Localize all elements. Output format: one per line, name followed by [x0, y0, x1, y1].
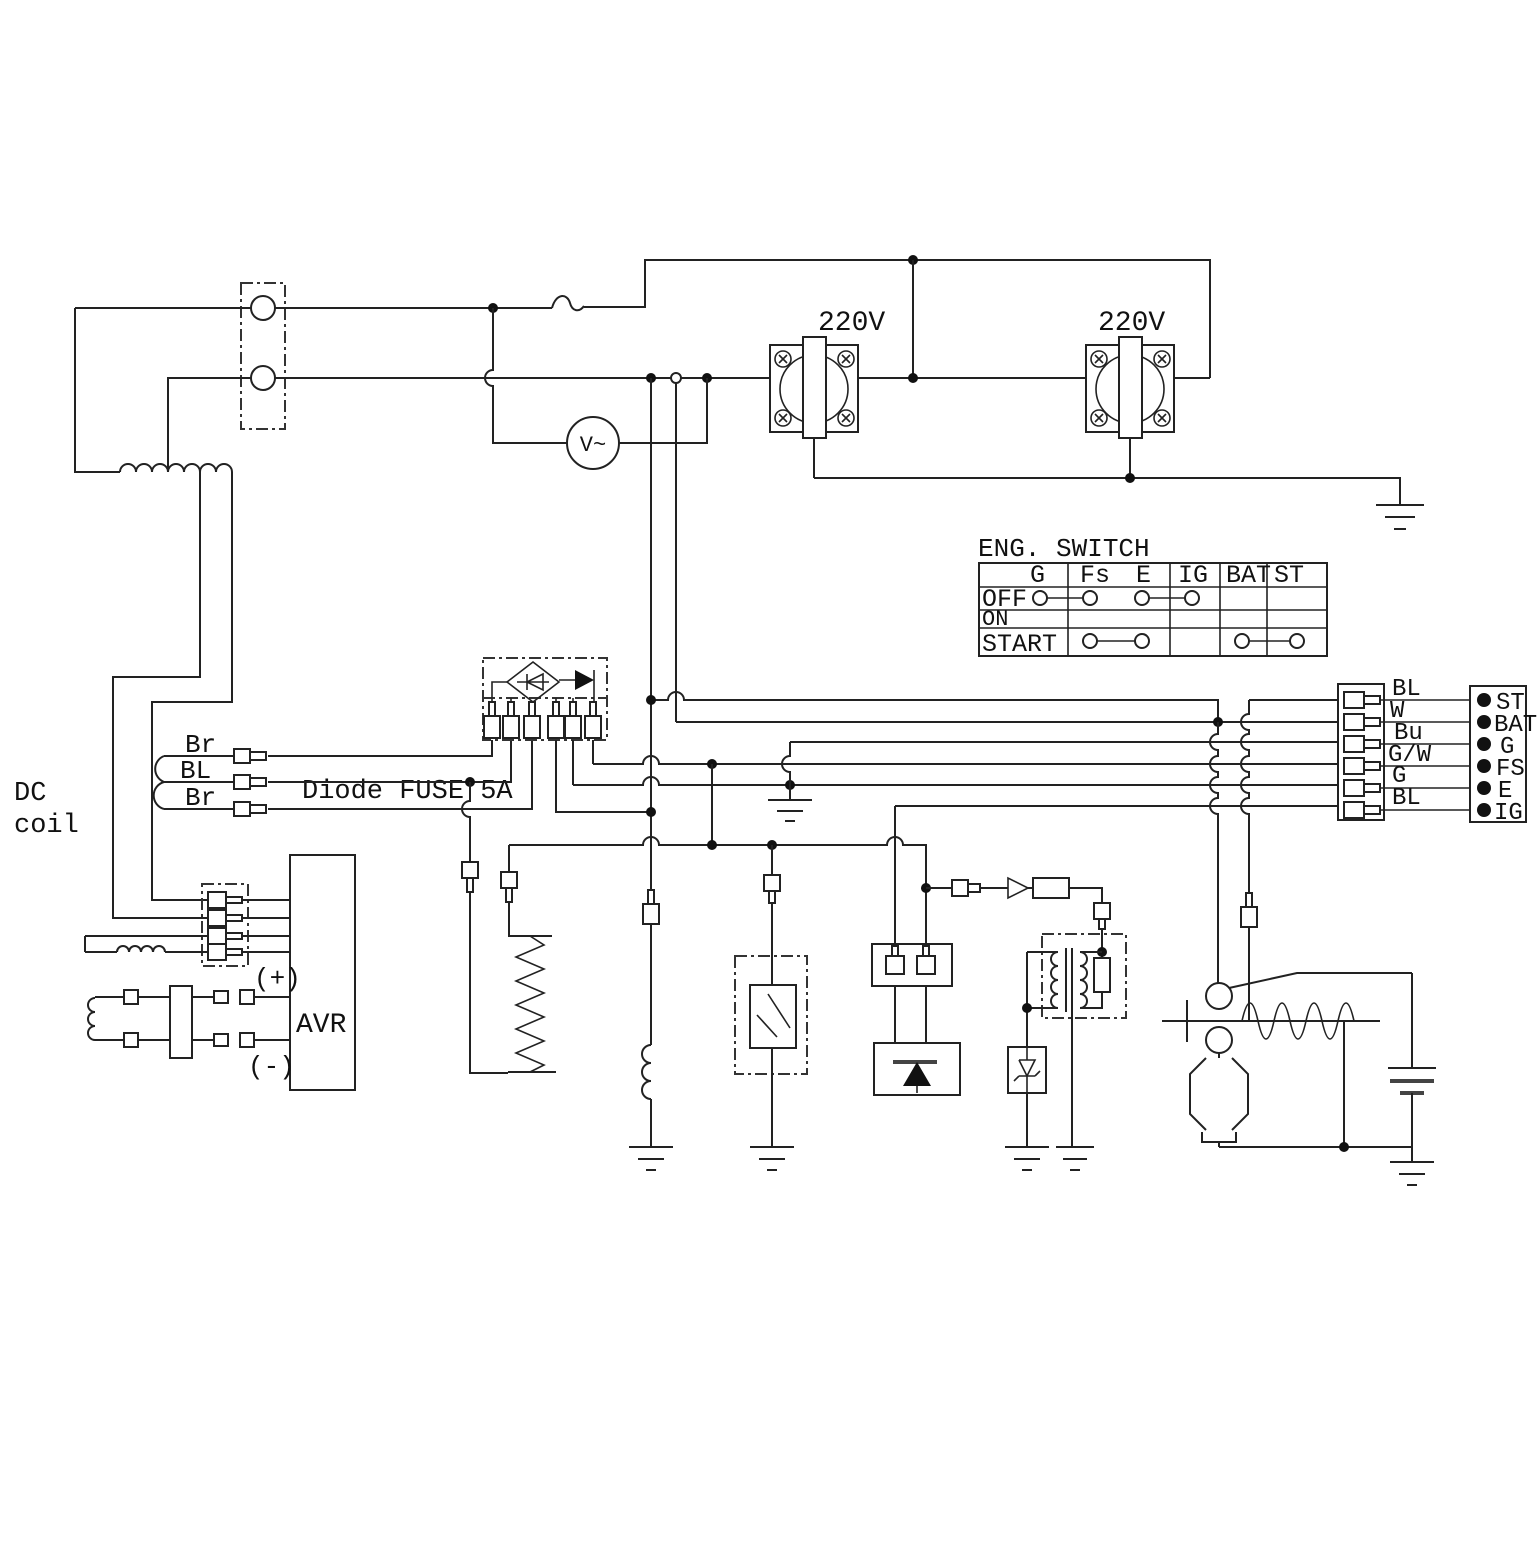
- outlet2-label: 220V: [1098, 308, 1165, 339]
- ignition-coil-box: [1042, 934, 1126, 1018]
- coil-icon: [642, 1045, 651, 1099]
- wiring-diagram: V~ 220V 220V: [0, 0, 1540, 1541]
- relay-contact-icon: [1206, 983, 1232, 1009]
- ground-icon: [768, 800, 812, 821]
- breaker-terminal-icon: [251, 366, 275, 390]
- outlet1-label: 220V: [818, 308, 885, 339]
- diode-icon: [517, 674, 549, 690]
- rectifier-unit: [483, 658, 607, 740]
- fuse-icon: [170, 986, 192, 1058]
- col-ig: IG: [1178, 561, 1208, 590]
- ground-icon: [750, 1147, 794, 1170]
- resistor-icon: [508, 936, 556, 1072]
- col-st: ST: [1274, 561, 1304, 590]
- avr-label: AVR: [296, 1010, 347, 1041]
- battery-icon: [1388, 973, 1436, 1162]
- relay-contact-icon: [1206, 1027, 1232, 1053]
- dc-coil-section: DC coil Br BL Br Diode FUSE 5A: [14, 658, 651, 841]
- outlet-220v-2: 220V: [1086, 308, 1174, 478]
- coil-icon: [120, 464, 232, 472]
- avr-minus-label: (-): [248, 1052, 295, 1082]
- ignition-coil-circuit: [926, 878, 1126, 1170]
- voltmeter: V~: [485, 308, 707, 469]
- resistor-icon: [1033, 878, 1069, 898]
- load-resistor-branch: [462, 782, 556, 1073]
- rectifier-pins: [484, 702, 601, 738]
- row-on: ON: [982, 607, 1008, 632]
- row-start: START: [982, 630, 1057, 659]
- col-fs: Fs: [1080, 561, 1110, 590]
- eng-switch-table: ENG. SWITCH G Fs E IG BAT ST OFF ON STAR…: [978, 534, 1327, 659]
- switch-contacts-start: [1083, 634, 1304, 648]
- schematic-canvas: V~ 220V 220V: [0, 0, 1540, 1541]
- diode-icon: [1008, 878, 1028, 898]
- starter-relay: [1162, 973, 1412, 1147]
- switch-contacts-off: [1033, 591, 1199, 605]
- fuse-icon: [552, 296, 584, 310]
- wire-label-bl2: BL: [1392, 785, 1421, 812]
- ground-icon: [629, 1147, 673, 1170]
- dc-coil-label-2: coil: [14, 811, 79, 841]
- oil-sensor: [735, 845, 807, 1170]
- avr-dc-input: (+) (-): [88, 964, 301, 1082]
- coil-icon: [88, 998, 95, 1040]
- harness-connector: BL W Bu G/W G BL ST BAT G FS E IG: [1338, 676, 1537, 827]
- terminal-ig: IG: [1494, 800, 1523, 827]
- cdi-connector: [872, 944, 952, 986]
- ground-icon: [1056, 1147, 1094, 1170]
- col-g: G: [1030, 561, 1045, 590]
- dc-coil-label-1: DC: [14, 779, 46, 809]
- ground-icon: [1005, 1147, 1049, 1170]
- starter-motor: [1190, 1053, 1248, 1147]
- ground-icon: [1376, 505, 1424, 529]
- coil-icon: [117, 946, 165, 952]
- ignition-control-unit: [872, 806, 960, 1095]
- stator-main-coil: [75, 308, 251, 918]
- sensor-element-icon: [750, 985, 796, 1048]
- col-e: E: [1136, 561, 1151, 590]
- breaker-terminal-icon: [251, 296, 275, 320]
- outlet-slot-icon: [1119, 337, 1142, 438]
- avr-section: AVR (+) (-): [85, 855, 355, 1090]
- col-bat: BAT: [1226, 561, 1271, 590]
- diode-icon: [575, 670, 594, 690]
- transformer-icon: [1027, 948, 1102, 1012]
- avr-plus-label: (+): [254, 964, 301, 994]
- voltmeter-label: V~: [580, 433, 606, 458]
- terminal-block: ST BAT G FS E IG: [1470, 686, 1537, 827]
- resistor-icon: [1094, 958, 1110, 992]
- coil-icon: [154, 756, 164, 809]
- outlet-220v-1: 220V: [770, 308, 885, 478]
- avr-connector-plugs: [208, 892, 242, 960]
- tap-point-icon: [671, 373, 681, 383]
- eng-switch-title: ENG. SWITCH: [978, 534, 1150, 564]
- circuit-breaker: [241, 283, 285, 429]
- ground-icon: [1390, 1162, 1434, 1185]
- outlet-slot-icon: [803, 337, 826, 438]
- charge-coil-branch: [629, 890, 673, 1170]
